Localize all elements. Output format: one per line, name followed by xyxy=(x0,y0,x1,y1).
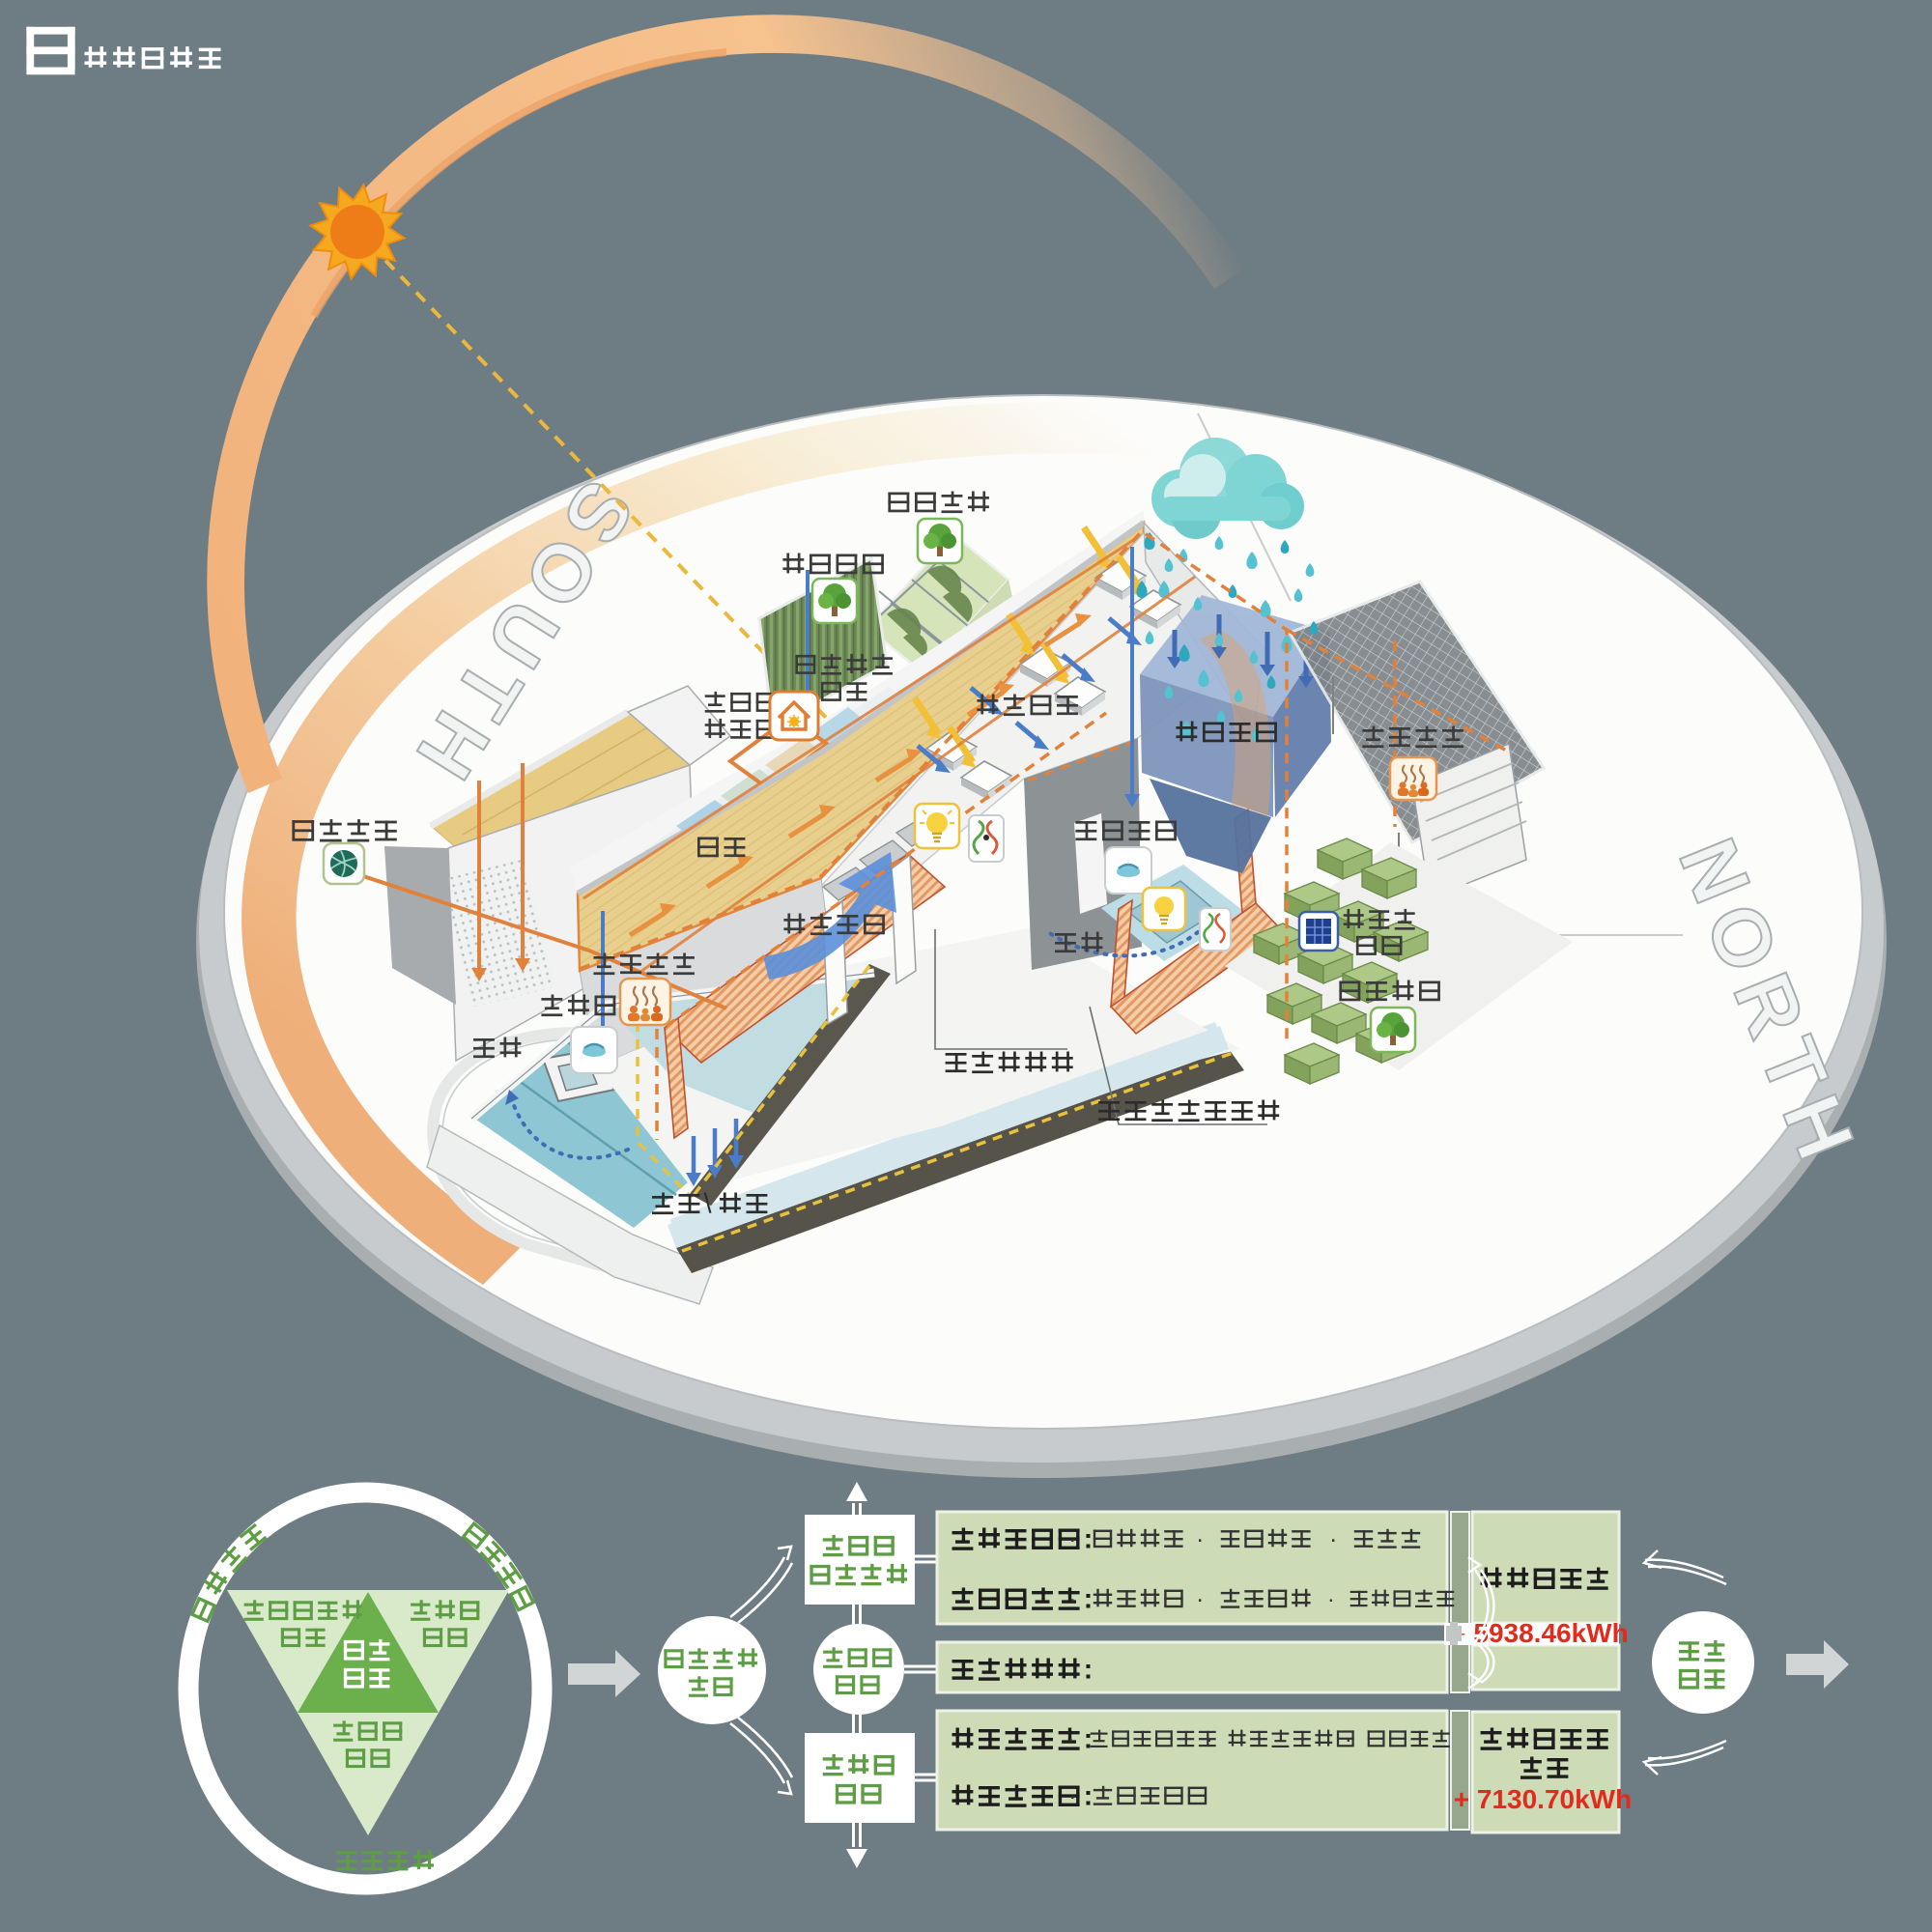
svg-text:·: · xyxy=(1345,1726,1352,1751)
svg-text:·: · xyxy=(1068,1783,1076,1810)
svg-text::: : xyxy=(1084,1781,1093,1812)
svg-text:·: · xyxy=(1327,1586,1335,1611)
svg-text:\: \ xyxy=(704,1189,712,1220)
svg-text::: : xyxy=(1084,1584,1093,1615)
svg-text:+ 7130.70kWh: + 7130.70kWh xyxy=(1454,1784,1632,1814)
svg-text::: : xyxy=(1084,1524,1093,1555)
svg-text:·: · xyxy=(1068,1526,1076,1553)
svg-text::: : xyxy=(1084,1655,1093,1686)
svg-text:·: · xyxy=(1068,1586,1076,1613)
svg-text::: : xyxy=(1084,1724,1093,1755)
svg-text:·: · xyxy=(1329,1526,1337,1553)
svg-text:·: · xyxy=(1196,1526,1204,1553)
svg-text:·: · xyxy=(1206,1726,1213,1751)
svg-text:·: · xyxy=(1196,1586,1204,1613)
svg-text:·: · xyxy=(1067,1726,1075,1751)
